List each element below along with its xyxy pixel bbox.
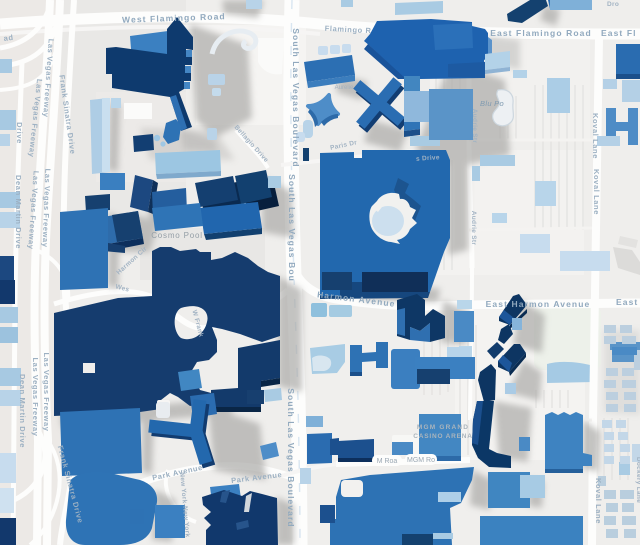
svg-text:Dean Martin Drive: Dean Martin Drive [14,175,23,249]
svg-text:Audrie Str: Audrie Str [470,211,477,246]
svg-text:South Las Vegas Bou: South Las Vegas Bou [287,174,297,282]
svg-text:Las Vegas Freeway: Las Vegas Freeway [42,353,51,432]
svg-text:Dean Martin Drive: Dean Martin Drive [18,374,27,448]
svg-text:South Las Vegas Boulevard: South Las Vegas Boulevard [286,388,296,527]
svg-text:Cosmo Pool: Cosmo Pool [151,231,203,240]
svg-text:East H: East H [616,297,640,307]
svg-text:Blu Po: Blu Po [480,99,504,108]
svg-text:MGM GRAND: MGM GRAND [417,424,469,431]
svg-text:East Fl: East Fl [601,28,637,38]
svg-text:Las Vegas Freeway: Las Vegas Freeway [31,358,40,437]
svg-text:South Las Vegas Boulevard: South Las Vegas Boulevard [291,28,301,167]
svg-text:ad: ad [3,33,14,43]
svg-text:East Flamingo Road: East Flamingo Road [490,28,592,38]
svg-text:East Harmon Avenue: East Harmon Avenue [486,299,591,309]
svg-text:Koval Lane: Koval Lane [592,169,601,215]
svg-text:M Roa: M Roa [377,458,398,465]
svg-text:Dockery Lane: Dockery Lane [635,457,640,503]
svg-text:CASINO ARENA: CASINO ARENA [413,433,473,440]
svg-text:Dro: Dro [607,1,619,8]
svg-text:Aurelie: Aurelie [335,85,354,91]
svg-text:Audrie Str: Audrie Str [471,109,478,144]
svg-text:Koval Lane: Koval Lane [594,478,603,524]
svg-text:Koval Lane: Koval Lane [591,113,600,159]
svg-text:MGM Ro: MGM Ro [407,457,435,464]
svg-text:Drive: Drive [15,122,24,144]
